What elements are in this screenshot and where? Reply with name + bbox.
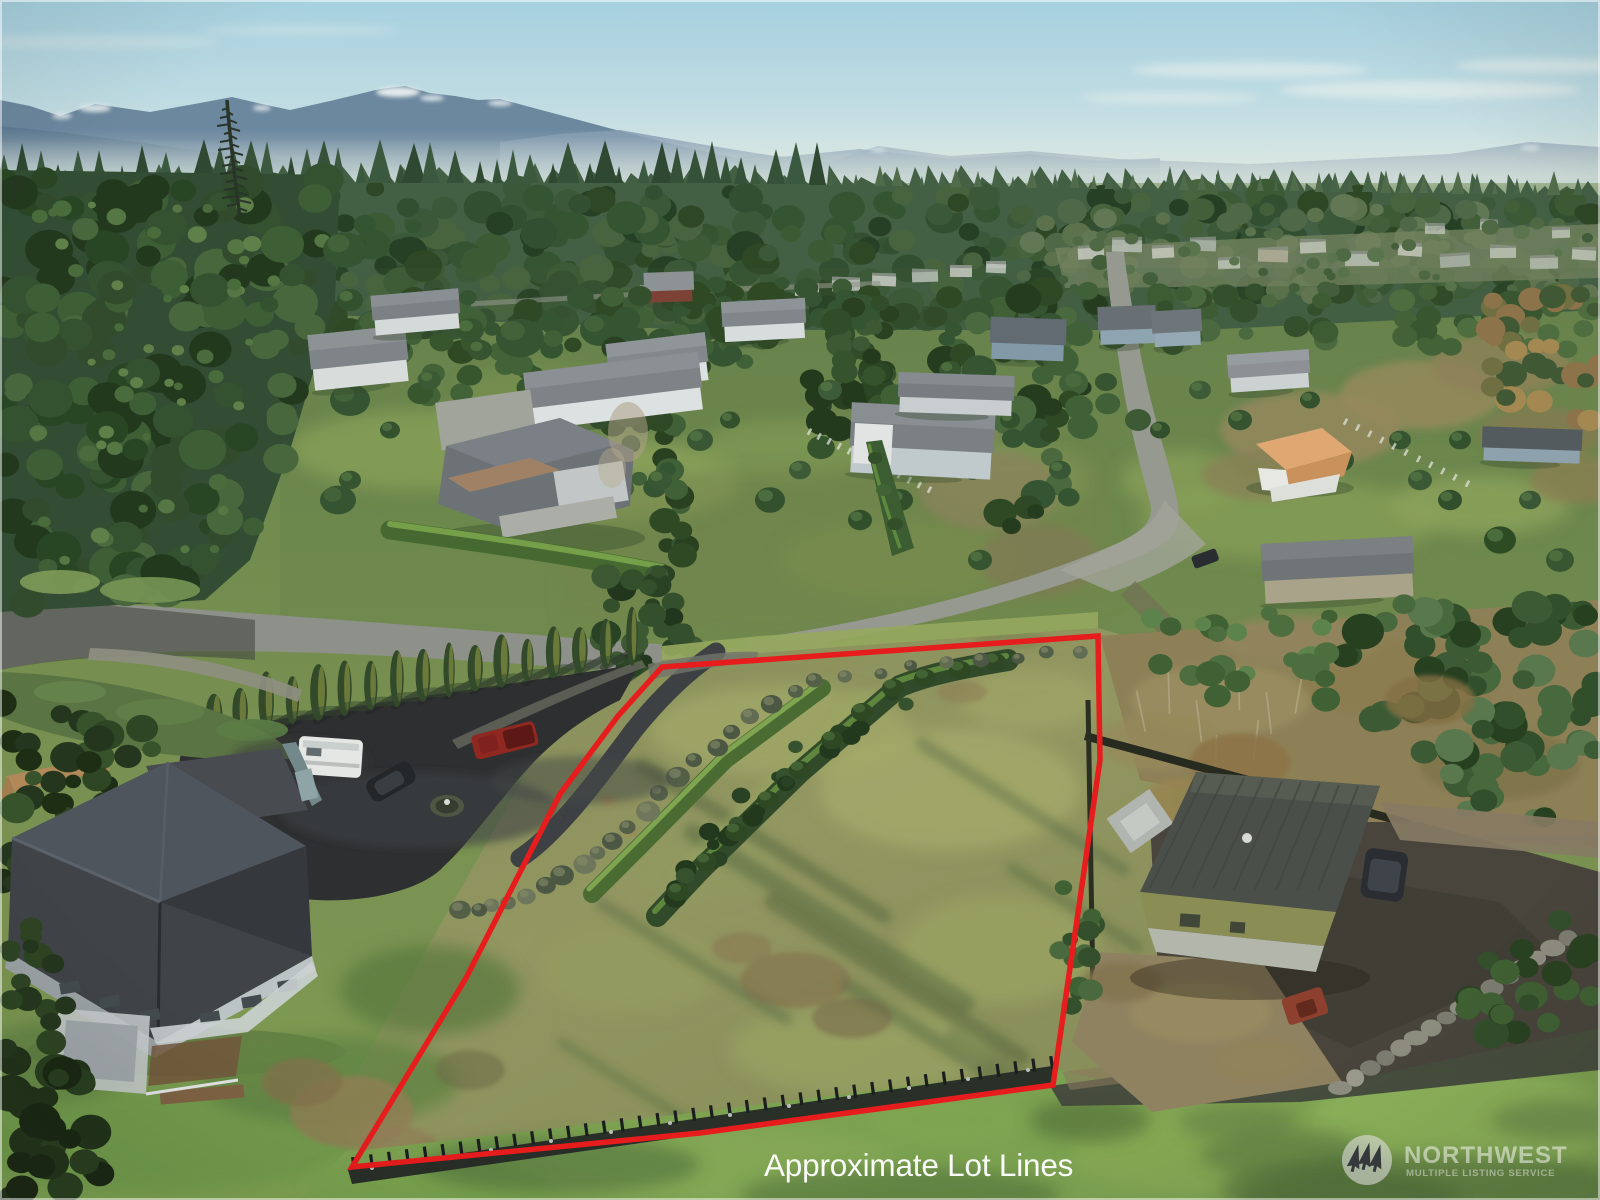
- svg-text:MULTIPLE LISTING SERVICE: MULTIPLE LISTING SERVICE: [1406, 1168, 1555, 1179]
- svg-text:Approximate Lot Lines: Approximate Lot Lines: [764, 1147, 1073, 1183]
- svg-text:NORTHWEST: NORTHWEST: [1404, 1142, 1568, 1169]
